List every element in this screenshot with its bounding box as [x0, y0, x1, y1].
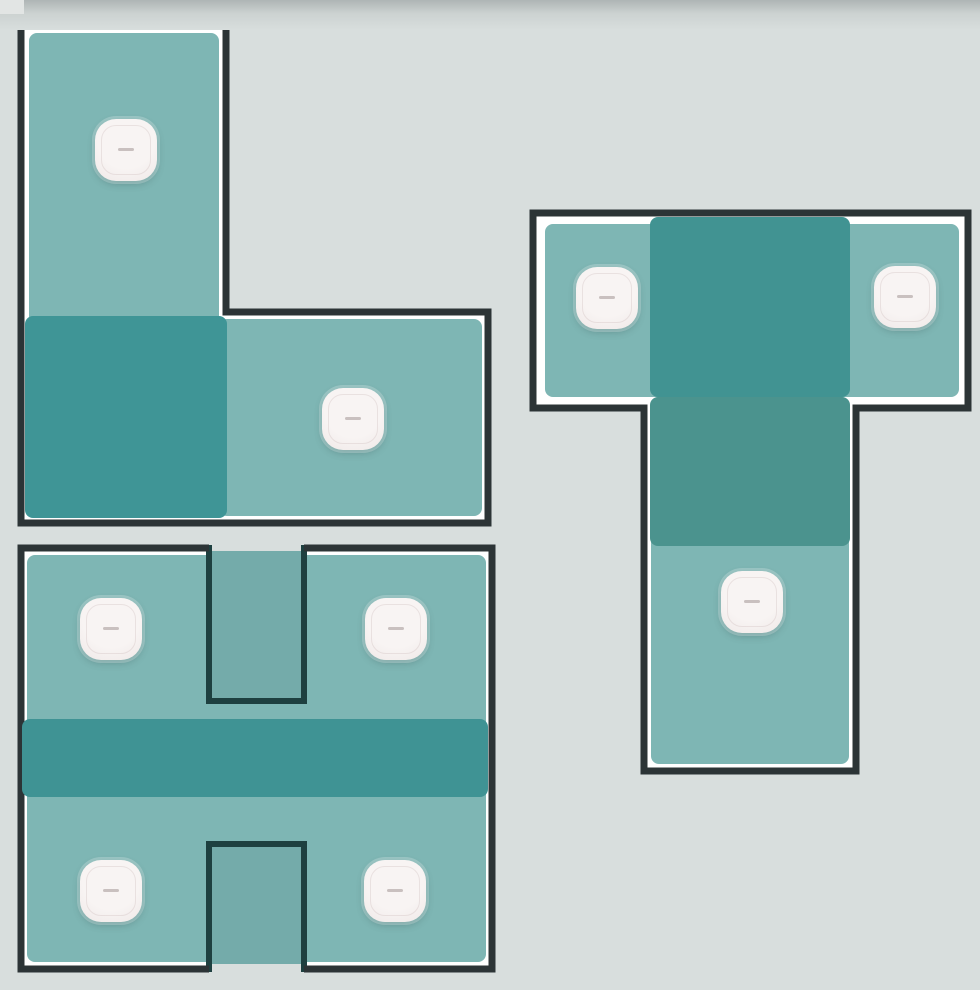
- access-point-icon[interactable]: [365, 598, 427, 660]
- access-point-icon[interactable]: [322, 388, 384, 450]
- access-point-icon[interactable]: [95, 119, 157, 181]
- access-point-icon[interactable]: [80, 598, 142, 660]
- ap-led-dash: [744, 600, 760, 604]
- access-point-layer: [0, 0, 980, 990]
- access-point-icon[interactable]: [874, 266, 936, 328]
- ap-led-dash: [599, 296, 615, 300]
- ap-led-dash: [345, 417, 361, 421]
- ap-led-dash: [103, 627, 119, 631]
- access-point-icon[interactable]: [364, 860, 426, 922]
- floorplan-canvas[interactable]: [0, 0, 980, 990]
- ap-led-dash: [118, 148, 134, 152]
- access-point-icon[interactable]: [721, 571, 783, 633]
- access-point-icon[interactable]: [80, 860, 142, 922]
- ap-led-dash: [388, 627, 404, 631]
- ap-led-dash: [387, 889, 403, 893]
- access-point-icon[interactable]: [576, 267, 638, 329]
- ap-led-dash: [103, 889, 119, 893]
- ap-led-dash: [897, 295, 913, 299]
